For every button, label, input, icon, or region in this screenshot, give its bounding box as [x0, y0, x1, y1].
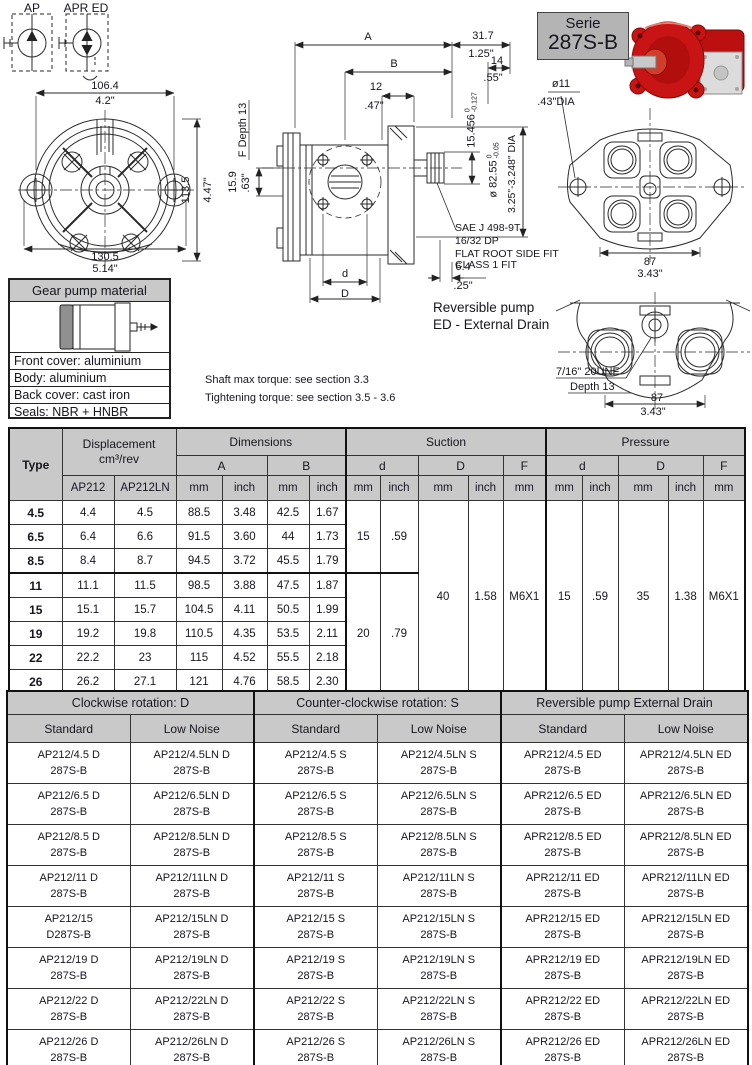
order-code-cell: AP212/11 S 287S-B — [254, 866, 377, 907]
unit-inch: inch — [468, 476, 503, 501]
unit-mm: mm — [418, 476, 468, 501]
ccw-lownoise-header: Low Noise — [377, 715, 501, 743]
type-cell: 19 — [9, 622, 62, 646]
suction-d-mm: 20 — [346, 573, 380, 694]
reversible-width-in: 3.43" — [640, 406, 665, 418]
material-seals: Seals: NBR + HNBR — [10, 403, 169, 420]
dim-table-cell: 94.5 — [176, 549, 222, 574]
front-view-drawing — [18, 93, 201, 270]
suction-d-inch: .59 — [380, 501, 418, 574]
series-number: 287S-B — [538, 32, 628, 53]
dim-table-cell: 1.79 — [309, 549, 346, 574]
order-code-cell: APR212/8.5 ED 287S-B — [501, 825, 624, 866]
order-codes-table: Clockwise rotation: D Counter-clockwise … — [6, 690, 749, 1065]
col-type-header: Type — [9, 428, 62, 501]
rear-view-drawing — [548, 92, 746, 262]
order-code-cell: AP212/6.5LN D 287S-B — [130, 784, 254, 825]
order-code-cell: APR212/8.5LN ED 287S-B — [624, 825, 748, 866]
shaft-torque-note: Shaft max torque: see section 3.3 — [205, 374, 369, 386]
unit-mm: mm — [618, 476, 668, 501]
type-cell: 6.5 — [9, 525, 62, 549]
dim-table-cell: 8.4 — [62, 549, 114, 574]
dimensions-table: Type Displacement cm³/rev Dimensions Suc… — [8, 427, 746, 695]
dim-table-cell: 53.5 — [267, 622, 309, 646]
front-total-width-in: 5.14" — [92, 263, 117, 275]
tightening-torque-note: Tightening torque: see section 3.5 - 3.6 — [205, 392, 395, 404]
order-code-cell: APR212/26LN ED 287S-B — [624, 1030, 748, 1065]
dim-table-cell: 1.99 — [309, 598, 346, 622]
group-pressure-header: Pressure — [546, 428, 745, 456]
ap212ln-header: AP212LN — [114, 476, 176, 501]
unit-mm: mm — [546, 476, 582, 501]
dim-table-cell: 6.6 — [114, 525, 176, 549]
order-code-cell: APR212/19 ED 287S-B — [501, 948, 624, 989]
material-body: Body: aluminium — [10, 369, 169, 386]
order-code-cell: AP212/15LN D 287S-B — [130, 907, 254, 948]
dim-table-cell: 3.48 — [222, 501, 267, 525]
ap-symbol-icon — [4, 14, 52, 71]
dim-table-cell: 4.5 — [114, 501, 176, 525]
order-code-cell: APR212/19LN ED 287S-B — [624, 948, 748, 989]
dim-table-cell: 22.2 — [62, 646, 114, 670]
pilot-dia-inch: 3.25"-3.248" DIA — [506, 135, 518, 213]
apr-ed-symbol-label: APR ED — [64, 1, 109, 15]
dim-6-4: 6.4 — [455, 261, 470, 273]
dim-d-label: d — [342, 268, 348, 280]
dim-table-cell: 47.5 — [267, 573, 309, 598]
unit-mm: mm — [703, 476, 745, 501]
dim-table-cell: 44 — [267, 525, 309, 549]
type-cell: 22 — [9, 646, 62, 670]
dim-table-cell: 115 — [176, 646, 222, 670]
group-suction-header: Suction — [346, 428, 546, 456]
order-code-cell: AP212/15 D287S-B — [7, 907, 130, 948]
pump-side-illustration — [10, 302, 169, 352]
dim-table-cell: 55.5 — [267, 646, 309, 670]
order-code-cell: AP212/26 D 287S-B — [7, 1030, 130, 1065]
order-code-cell: APR212/6.5LN ED 287S-B — [624, 784, 748, 825]
order-code-cell: APR212/4.5 ED 287S-B — [501, 743, 624, 784]
drain-port-thread: 7/16" 20UNF — [556, 366, 619, 378]
dim-table-cell: 1.73 — [309, 525, 346, 549]
dim-table-cell: 110.5 — [176, 622, 222, 646]
order-code-cell: APR212/26 ED 287S-B — [501, 1030, 624, 1065]
unit-mm: mm — [503, 476, 546, 501]
drain-port-depth: Depth 13 — [570, 381, 615, 393]
unit-inch: inch — [582, 476, 618, 501]
suction-dd-header: D — [418, 456, 503, 476]
suction-D-inch: 1.58 — [468, 501, 503, 695]
dim-table-cell: 91.5 — [176, 525, 222, 549]
type-cell: 4.5 — [9, 501, 62, 525]
front-height-in: 4.47" — [202, 177, 214, 202]
order-code-cell: AP212/22 D 287S-B — [7, 989, 130, 1030]
cw-lownoise-header: Low Noise — [130, 715, 254, 743]
dim-55: .55" — [483, 72, 502, 84]
suction-F: M6X1 — [503, 501, 546, 695]
order-code-cell: APR212/11 ED 287S-B — [501, 866, 624, 907]
order-code-cell: AP212/22LN S 287S-B — [377, 989, 501, 1030]
dim-47: .47" — [364, 100, 383, 112]
dim-table-cell: 98.5 — [176, 573, 222, 598]
reversible-label-1: Reversible pump — [433, 300, 534, 315]
order-code-cell: AP212/26 S 287S-B — [254, 1030, 377, 1065]
order-code-cell: APR212/22 ED 287S-B — [501, 989, 624, 1030]
ccw-standard-header: Standard — [254, 715, 377, 743]
order-code-cell: AP212/6.5LN S 287S-B — [377, 784, 501, 825]
order-code-cell: APR212/15LN ED 287S-B — [624, 907, 748, 948]
pressure-D-inch: 1.38 — [668, 501, 703, 695]
order-code-cell: AP212/8.5LN S 287S-B — [377, 825, 501, 866]
order-code-cell: AP212/6.5 S 287S-B — [254, 784, 377, 825]
order-code-cell: APR212/15 ED 287S-B — [501, 907, 624, 948]
dim-table-cell: 23 — [114, 646, 176, 670]
dim-table-cell: 15.1 — [62, 598, 114, 622]
pressure-d-mm: 15 — [546, 501, 582, 695]
rev-standard-header: Standard — [501, 715, 624, 743]
pressure-d-header: d — [546, 456, 618, 476]
rear-dia11: ø11 — [552, 78, 570, 90]
suction-d-inch: .79 — [380, 573, 418, 694]
dim-table-cell: 4.11 — [222, 598, 267, 622]
dim-table-cell: 3.88 — [222, 573, 267, 598]
reversible-label-2: ED - External Drain — [433, 317, 549, 332]
order-code-cell: AP212/26LN S 287S-B — [377, 1030, 501, 1065]
spline-note-2: 16/32 DP — [455, 235, 499, 247]
reversible-width-mm: 87 — [651, 392, 663, 404]
dim-31-7: 31.7 — [472, 30, 493, 42]
dim-a-label: A — [364, 31, 371, 43]
order-code-cell: AP212/19LN S 287S-B — [377, 948, 501, 989]
group-reversible-header: Reversible pump External Drain — [501, 691, 748, 715]
order-code-cell: AP212/22 S 287S-B — [254, 989, 377, 1030]
dim-table-cell: 104.5 — [176, 598, 222, 622]
col-b-header: B — [267, 456, 346, 476]
order-code-cell: AP212/4.5LN S 287S-B — [377, 743, 501, 784]
front-height-mm: 113.5 — [180, 177, 192, 204]
pressure-D-mm: 35 — [618, 501, 668, 695]
dim-table-cell: 11.5 — [114, 573, 176, 598]
front-width-mm: 106.4 — [91, 80, 119, 92]
dim-table-cell: 11.1 — [62, 573, 114, 598]
group-clockwise-header: Clockwise rotation: D — [7, 691, 254, 715]
dim-table-cell: 4.52 — [222, 646, 267, 670]
dim-table-cell: 6.4 — [62, 525, 114, 549]
type-cell: 11 — [9, 573, 62, 598]
order-code-cell: AP212/8.5 S 287S-B — [254, 825, 377, 866]
order-code-cell: AP212/15LN S 287S-B — [377, 907, 501, 948]
displacement-line1: Displacement — [63, 437, 176, 452]
tol-bottom: -0.127 — [472, 92, 479, 112]
tol-top: 0 — [465, 92, 472, 112]
dim-table-cell: 88.5 — [176, 501, 222, 525]
order-code-cell: AP212/19LN D 287S-B — [130, 948, 254, 989]
order-code-cell: AP212/8.5 D 287S-B — [7, 825, 130, 866]
dim-63: .63" — [240, 173, 252, 192]
suction-f-header: F — [503, 456, 546, 476]
unit-inch: inch — [309, 476, 346, 501]
pilot-dia-value: ø 82.55 — [488, 160, 500, 197]
dim-14: 14 — [491, 55, 503, 67]
front-total-width-mm: 130.5 — [91, 251, 119, 263]
order-code-cell: APR212/22LN ED 287S-B — [624, 989, 748, 1030]
material-back-cover: Back cover: cast iron — [10, 386, 169, 403]
material-box: Gear pump material Front cover: aluminiu… — [8, 278, 171, 419]
order-code-cell: AP212/6.5 D 287S-B — [7, 784, 130, 825]
dim-table-cell: 50.5 — [267, 598, 309, 622]
dim-table-cell: 1.67 — [309, 501, 346, 525]
spline-note-1: SAE J 498-9T — [455, 222, 520, 234]
order-code-cell: AP212/4.5LN D 287S-B — [130, 743, 254, 784]
dim-table-cell: 1.87 — [309, 573, 346, 598]
unit-mm: mm — [176, 476, 222, 501]
suction-D-mm: 40 — [418, 501, 468, 695]
dim-dd-label: D — [341, 288, 349, 300]
ap212-header: AP212 — [62, 476, 114, 501]
dim-table-cell: 2.18 — [309, 646, 346, 670]
front-width-in: 4.2" — [95, 95, 114, 107]
dim-table-cell: 8.7 — [114, 549, 176, 574]
dim-25: .25" — [453, 280, 472, 292]
col-displacement-header: Displacement cm³/rev — [62, 428, 176, 476]
shaft-dia-value: 15.456 — [466, 114, 478, 148]
order-code-cell: AP212/11LN S 287S-B — [377, 866, 501, 907]
rev-lownoise-header: Low Noise — [624, 715, 748, 743]
order-code-cell: AP212/11 D 287S-B — [7, 866, 130, 907]
order-code-cell: AP212/8.5LN D 287S-B — [130, 825, 254, 866]
series-word: Serie — [538, 15, 628, 32]
dim-table-cell: 3.60 — [222, 525, 267, 549]
tol-top: 0 — [487, 142, 494, 158]
rear-dia11-in: .43"DIA — [537, 96, 575, 108]
order-code-cell: AP212/22LN D 287S-B — [130, 989, 254, 1030]
dim-12: 12 — [370, 81, 382, 93]
order-code-cell: AP212/4.5 S 287S-B — [254, 743, 377, 784]
material-box-title: Gear pump material — [10, 280, 169, 302]
order-code-cell: APR212/4.5LN ED 287S-B — [624, 743, 748, 784]
apr-ed-symbol-icon — [59, 14, 108, 80]
suction-d-header: d — [346, 456, 418, 476]
dim-b-label: B — [390, 58, 397, 70]
series-badge: Serie 287S-B — [537, 12, 629, 60]
dim-table-cell: 45.5 — [267, 549, 309, 574]
product-photo — [625, 22, 744, 98]
pressure-f-header: F — [703, 456, 745, 476]
group-dimensions-header: Dimensions — [176, 428, 346, 456]
unit-inch: inch — [668, 476, 703, 501]
pilot-dia-tolerance: ø 82.55 0-0.05 — [487, 142, 502, 197]
tol-bottom: -0.05 — [494, 142, 501, 158]
dim-table-cell: 2.11 — [309, 622, 346, 646]
dim-table-cell: 4.35 — [222, 622, 267, 646]
order-code-cell: AP212/19 D 287S-B — [7, 948, 130, 989]
rear-width-in: 3.43" — [637, 268, 662, 280]
type-cell: 8.5 — [9, 549, 62, 574]
type-cell: 15 — [9, 598, 62, 622]
unit-mm: mm — [267, 476, 309, 501]
dim-table-cell: 3.72 — [222, 549, 267, 574]
order-code-cell: AP212/26LN D 287S-B — [130, 1030, 254, 1065]
unit-inch: inch — [380, 476, 418, 501]
dim-table-cell: 4.4 — [62, 501, 114, 525]
pressure-d-inch: .59 — [582, 501, 618, 695]
order-code-cell: AP212/15 S 287S-B — [254, 907, 377, 948]
shaft-dia-tolerance: 15.456 0-0.127 — [465, 92, 480, 148]
rear-width-mm: 87 — [644, 256, 656, 268]
order-code-cell: APR212/6.5 ED 287S-B — [501, 784, 624, 825]
material-front-cover: Front cover: aluminium — [10, 352, 169, 369]
order-code-cell: AP212/11LN D 287S-B — [130, 866, 254, 907]
unit-inch: inch — [222, 476, 267, 501]
group-counterclockwise-header: Counter-clockwise rotation: S — [254, 691, 501, 715]
dim-table-cell: 19.8 — [114, 622, 176, 646]
dim-table-cell: 15.7 — [114, 598, 176, 622]
f-depth-label: F Depth 13 — [237, 103, 249, 157]
order-code-cell: AP212/19 S 287S-B — [254, 948, 377, 989]
col-a-header: A — [176, 456, 267, 476]
dim-1-25: 1.25" — [468, 48, 493, 60]
datasheet-page: AP APR ED 106.4 4.2" 113.5 4.47" 130.5 5… — [0, 0, 752, 1065]
unit-mm: mm — [346, 476, 380, 501]
dim-table-cell: 42.5 — [267, 501, 309, 525]
order-code-cell: AP212/4.5 D 287S-B — [7, 743, 130, 784]
cw-standard-header: Standard — [7, 715, 130, 743]
pressure-F: M6X1 — [703, 501, 745, 695]
dim-15-9: 15.9 — [227, 171, 239, 192]
displacement-line2: cm³/rev — [63, 452, 176, 467]
pressure-dd-header: D — [618, 456, 703, 476]
order-code-cell: APR212/11LN ED 287S-B — [624, 866, 748, 907]
dim-table-cell: 19.2 — [62, 622, 114, 646]
suction-d-mm: 15 — [346, 501, 380, 574]
ap-symbol-label: AP — [24, 1, 40, 15]
